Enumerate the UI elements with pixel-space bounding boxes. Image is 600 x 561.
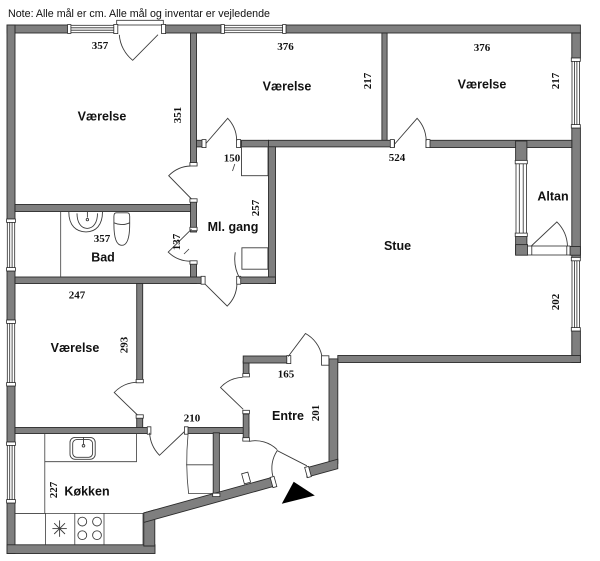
svg-text:376: 376	[474, 42, 491, 54]
svg-text:Bad: Bad	[91, 251, 115, 265]
svg-text:150: 150	[224, 153, 241, 165]
svg-text:217: 217	[550, 72, 562, 89]
svg-text:Værelse: Værelse	[51, 341, 100, 355]
svg-text:202: 202	[550, 293, 562, 310]
svg-text:257: 257	[250, 199, 262, 216]
svg-text:Note: Alle mål er cm. Alle mål: Note: Alle mål er cm. Alle mål og invent…	[8, 8, 270, 20]
svg-text:210: 210	[184, 413, 201, 425]
svg-text:Stue: Stue	[384, 239, 411, 253]
svg-text:Værelse: Værelse	[78, 110, 127, 124]
svg-text:Ml. gang: Ml. gang	[208, 220, 259, 234]
svg-text:Værelse: Værelse	[263, 80, 312, 94]
svg-text:165: 165	[278, 369, 295, 381]
svg-text:Altan: Altan	[537, 190, 568, 204]
svg-text:293: 293	[119, 336, 131, 353]
svg-text:357: 357	[94, 233, 111, 245]
svg-text:201: 201	[310, 405, 322, 422]
svg-text:Entre: Entre	[272, 409, 304, 423]
svg-text:137: 137	[171, 233, 183, 250]
svg-text:524: 524	[389, 152, 406, 164]
svg-text:227: 227	[48, 481, 60, 498]
svg-text:Værelse: Værelse	[458, 78, 507, 92]
svg-text:Køkken: Køkken	[64, 485, 109, 499]
svg-text:357: 357	[92, 40, 109, 52]
svg-text:217: 217	[362, 72, 374, 89]
svg-text:247: 247	[69, 290, 86, 302]
svg-text:351: 351	[172, 107, 184, 124]
svg-text:376: 376	[277, 41, 294, 53]
